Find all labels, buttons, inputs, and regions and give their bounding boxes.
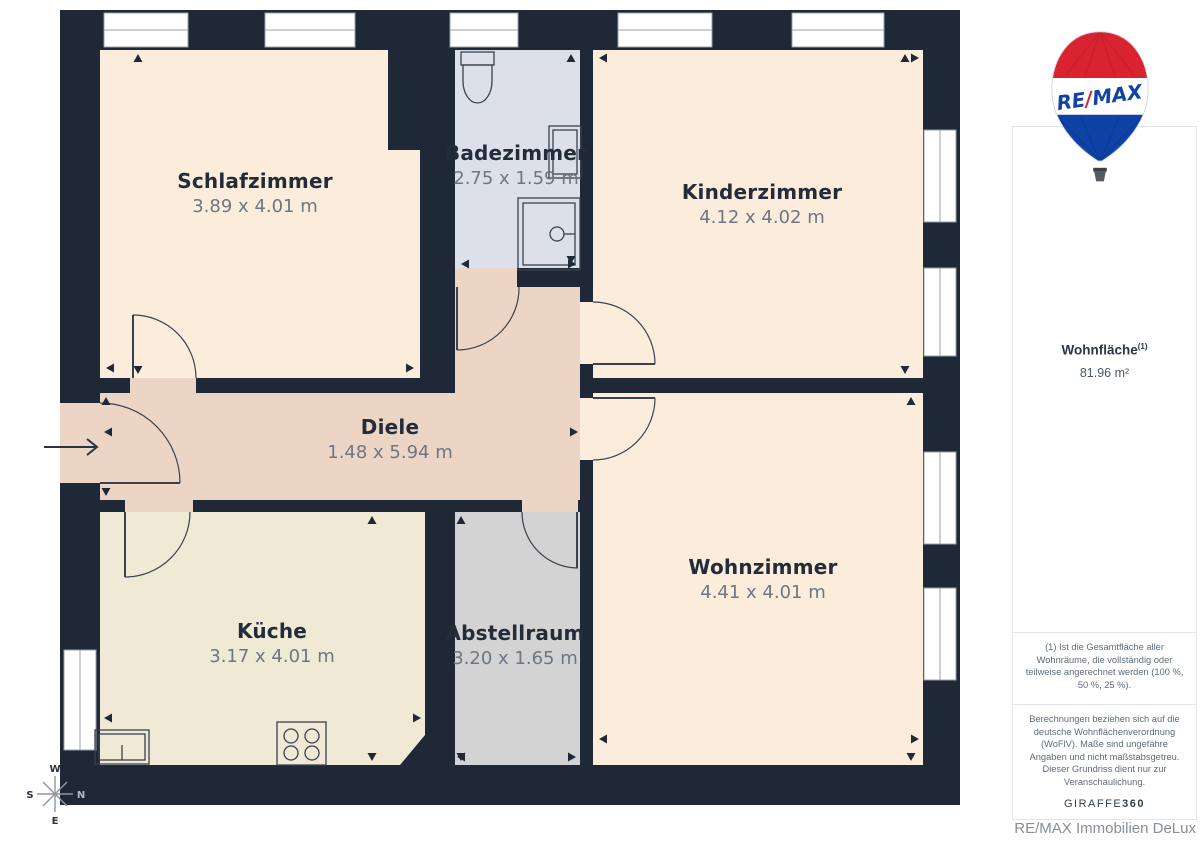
- footnote-area-definition: (1) Ist die Gesamtfläche aller Wohnräume…: [1013, 632, 1196, 699]
- remax-balloon-logo: RE/MAX: [1042, 26, 1158, 190]
- door-opening-kinderzimmer: [580, 302, 593, 364]
- room-label-badezimmer: Badezimmer 2.75 x 1.59 m: [445, 140, 587, 192]
- compass-w: W: [49, 764, 60, 775]
- living-area-block: Wohnfläche(1) 81.96 m²: [1013, 342, 1196, 380]
- company-credit: RE/MAX Immobilien DeLux: [1014, 820, 1196, 837]
- room-label-wohnzimmer: Wohnzimmer 4.41 x 4.01 m: [688, 554, 837, 606]
- room-label-schlafzimmer: Schlafzimmer 3.89 x 4.01 m: [177, 168, 333, 220]
- room-dims: 3.20 x 1.65 m: [445, 646, 584, 672]
- room-dims: 3.17 x 4.01 m: [209, 644, 335, 670]
- room-name: Küche: [209, 618, 335, 644]
- giraffe360-brand: GIRAFFE360: [1013, 798, 1196, 810]
- room-dims: 2.75 x 1.59 m: [445, 166, 587, 192]
- room-name: Kinderzimmer: [682, 179, 842, 205]
- room-label-abstellraum: Abstellraum 3.20 x 1.65 m: [445, 620, 584, 672]
- room-label-diele: Diele 1.48 x 5.94 m: [327, 414, 453, 466]
- living-area-label: Wohnfläche(1): [1013, 342, 1196, 358]
- door-opening-kueche: [125, 500, 193, 512]
- compass-n: N: [77, 790, 85, 801]
- door-opening-schlafzimmer: [130, 378, 196, 393]
- floorplan-page: W S N E Schlafzimmer 3.89 x 4.01 m Badez…: [0, 0, 1200, 848]
- entrance-opening: [60, 403, 100, 483]
- room-dims: 4.12 x 4.02 m: [682, 205, 842, 231]
- compass-e: E: [52, 816, 59, 827]
- balloon-basket: [1093, 168, 1107, 172]
- compass-s: S: [26, 790, 33, 801]
- info-panel: Wohnfläche(1) 81.96 m² (1) Ist die Gesam…: [1012, 126, 1197, 820]
- floorplan-drawing: W S N E: [0, 0, 1000, 848]
- living-area-value: 81.96 m²: [1013, 366, 1196, 380]
- door-opening-abstellraum: [522, 500, 578, 512]
- room-name: Schlafzimmer: [177, 168, 333, 194]
- room-dims: 4.41 x 4.01 m: [688, 580, 837, 606]
- room-label-kinderzimmer: Kinderzimmer 4.12 x 4.02 m: [682, 179, 842, 231]
- room-label-kueche: Küche 3.17 x 4.01 m: [209, 618, 335, 670]
- footnote-disclaimer: Berechnungen beziehen sich auf die deuts…: [1013, 704, 1196, 796]
- room-name: Badezimmer: [445, 140, 587, 166]
- room-dims: 3.89 x 4.01 m: [177, 194, 333, 220]
- room-dims: 1.48 x 5.94 m: [327, 440, 453, 466]
- door-opening-badezimmer: [455, 268, 517, 287]
- room-name: Wohnzimmer: [688, 554, 837, 580]
- door-opening-wohnzimmer: [580, 398, 593, 460]
- room-name: Abstellraum: [445, 620, 584, 646]
- room-name: Diele: [327, 414, 453, 440]
